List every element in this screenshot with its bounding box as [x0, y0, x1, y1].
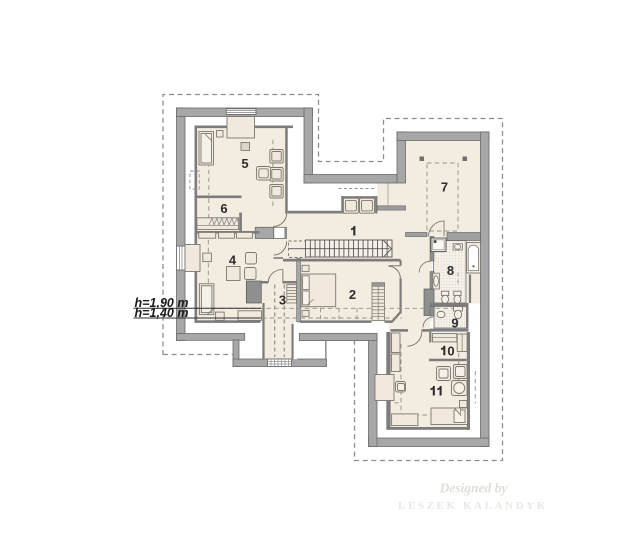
svg-text:6: 6: [220, 201, 227, 216]
svg-text:7: 7: [441, 180, 448, 195]
svg-text:2: 2: [349, 287, 356, 302]
svg-text:9: 9: [451, 315, 458, 330]
svg-text:8: 8: [447, 263, 454, 278]
svg-text:Designed by: Designed by: [439, 481, 509, 496]
svg-text:0: 0: [447, 343, 454, 358]
svg-text:4: 4: [229, 252, 237, 267]
svg-text:LESZEK KALANDYK: LESZEK KALANDYK: [398, 500, 548, 512]
svg-text:3: 3: [279, 293, 286, 308]
svg-text:5: 5: [241, 156, 248, 171]
